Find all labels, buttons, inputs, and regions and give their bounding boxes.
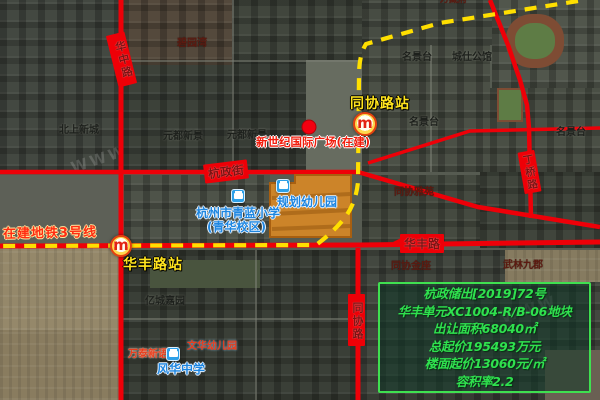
red-dot-marker <box>302 120 316 134</box>
station-label-tongxie: 同协路站 <box>350 97 410 112</box>
poi-label: 元都新景 <box>163 131 203 142</box>
poi-label-qinglan-campus: (青华校区) <box>207 221 266 234</box>
poi-label: 名景台 <box>402 52 432 63</box>
poi-label-qinglan-primary: 杭州市青蓝小学 <box>196 207 280 220</box>
poi-label: 名景台 <box>556 127 586 138</box>
poi-label: 亿城嘉园 <box>145 296 185 307</box>
station-label-huafeng: 华丰路站 <box>123 258 183 273</box>
info-line-start-price: 总起价195493万元 <box>380 338 589 356</box>
road-badge-tongxie: 同协路 <box>348 294 365 346</box>
book-glyph <box>234 193 243 199</box>
school-icon <box>231 189 245 203</box>
school-icon <box>166 347 180 361</box>
road-badge-huafeng: 华丰路 <box>400 234 444 253</box>
poi-label: 文华幼儿园 <box>187 341 237 352</box>
poi-label: 名景台 <box>409 117 439 128</box>
poi-label: 万泰新语 <box>128 349 168 360</box>
metro-station-icon: m <box>110 235 132 257</box>
road-badge-huafeng-label: 华丰路 <box>404 237 440 251</box>
info-line-parcel-id: 华丰单元XC1004-R/B-06地块 <box>380 303 589 321</box>
metro-line3-label: 在建地铁3号线 <box>3 226 97 242</box>
poi-label: 万藏府 <box>440 0 467 6</box>
info-line-floor-price: 楼面起价13060元/㎡ <box>380 355 589 373</box>
poi-label: 北上新城 <box>59 125 99 136</box>
poi-label-xinshiji-plaza: 新世纪国际广场(在建) <box>256 136 370 149</box>
metro-logo-m: m <box>113 238 129 253</box>
parcel-info-box: 杭政储出[2019]72号 华丰单元XC1004-R/B-06地块 出让面积68… <box>378 282 591 393</box>
info-line-area: 出让面积68040㎡ <box>380 320 589 338</box>
poi-label-guihua-kindergarten: 规划幼儿园 <box>277 196 337 209</box>
poi-label: 碧园湾 <box>177 38 207 49</box>
school-icon <box>276 179 290 193</box>
metro-station-icon: m <box>353 112 377 136</box>
book-glyph <box>169 351 178 357</box>
poi-label: 武林九郡 <box>503 260 543 271</box>
book-glyph <box>279 183 288 189</box>
info-line-notice-no: 杭政储出[2019]72号 <box>380 285 589 303</box>
poi-label: 城仕公馆 <box>452 52 492 63</box>
info-line-plot-ratio: 容积率2.2 <box>380 373 589 391</box>
poi-label: 同协金座 <box>391 261 431 272</box>
poi-label: 同协雅苑 <box>394 187 434 198</box>
map-canvas[interactable]: WWW WWW 华中路 杭政街 丁桥路 华丰路 同协路 同协路站 m 在建地铁3… <box>0 0 600 400</box>
badge-arrow <box>393 238 401 246</box>
metro-logo-m: m <box>357 116 373 131</box>
poi-label: 风华中学 <box>157 363 205 376</box>
